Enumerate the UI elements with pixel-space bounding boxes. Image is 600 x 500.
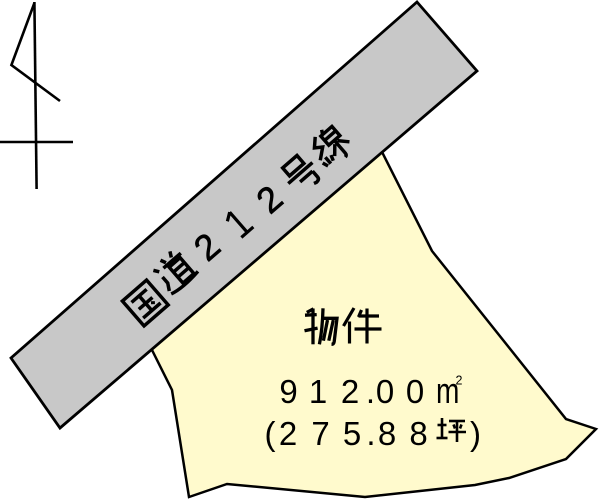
svg-text:.: . (366, 373, 375, 410)
svg-text:5: 5 (343, 415, 361, 452)
svg-text:0: 0 (376, 373, 394, 410)
svg-text:9: 9 (279, 373, 297, 410)
svg-text:1: 1 (309, 373, 327, 410)
svg-text:8: 8 (378, 415, 396, 452)
svg-text:2: 2 (456, 374, 463, 388)
svg-text:2: 2 (341, 373, 359, 410)
svg-text:8: 8 (409, 415, 427, 452)
svg-text:): ) (470, 415, 481, 452)
svg-text:2: 2 (279, 415, 297, 452)
svg-text:0: 0 (406, 373, 424, 410)
svg-text:7: 7 (311, 415, 329, 452)
svg-text:.: . (366, 415, 375, 452)
svg-text:(: ( (265, 415, 276, 452)
